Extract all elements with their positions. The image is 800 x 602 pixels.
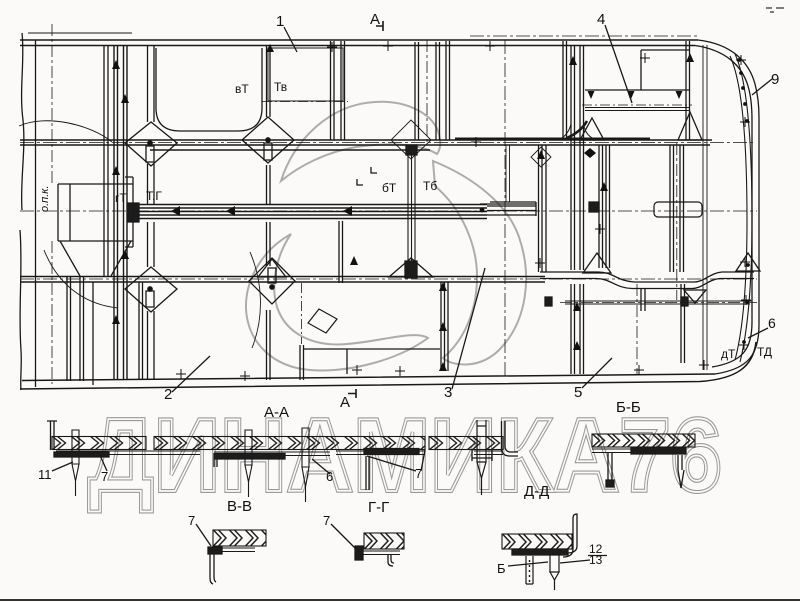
svg-text:дТ: дТ [721,347,736,361]
svg-text:7: 7 [101,469,108,484]
svg-text:Т.Г: Т.Г [146,189,162,203]
svg-text:А: А [340,394,350,411]
svg-text:Тв: Тв [274,80,287,94]
svg-text:вТ: вТ [235,82,249,96]
svg-text:бТ: бТ [382,181,397,195]
svg-text:7: 7 [188,513,195,528]
svg-text:4: 4 [597,11,605,28]
svg-text:А-А: А-А [264,404,289,421]
svg-text:1: 1 [276,13,284,30]
svg-text:Б: Б [497,561,506,576]
svg-text:Тб: Тб [423,179,437,193]
svg-text:А: А [370,11,380,28]
svg-text:Б-Б: Б-Б [616,399,641,416]
svg-text:7: 7 [415,466,422,481]
svg-text:о.п.к.: о.п.к. [39,185,51,212]
svg-text:3: 3 [444,384,452,401]
svg-text:6: 6 [768,315,776,331]
svg-text:В-В: В-В [227,498,252,515]
svg-text:11: 11 [38,467,52,482]
svg-text:гТ: гТ [115,191,127,205]
svg-text:5: 5 [574,384,582,401]
svg-text:13: 13 [589,553,603,567]
svg-text:Г-Г: Г-Г [368,499,389,516]
svg-text:9: 9 [771,71,779,88]
svg-text:7: 7 [323,513,330,528]
svg-text:ТД: ТД [757,345,772,359]
svg-text:2: 2 [164,386,172,403]
svg-text:Д-Д: Д-Д [524,483,549,500]
svg-text:6: 6 [326,469,333,484]
